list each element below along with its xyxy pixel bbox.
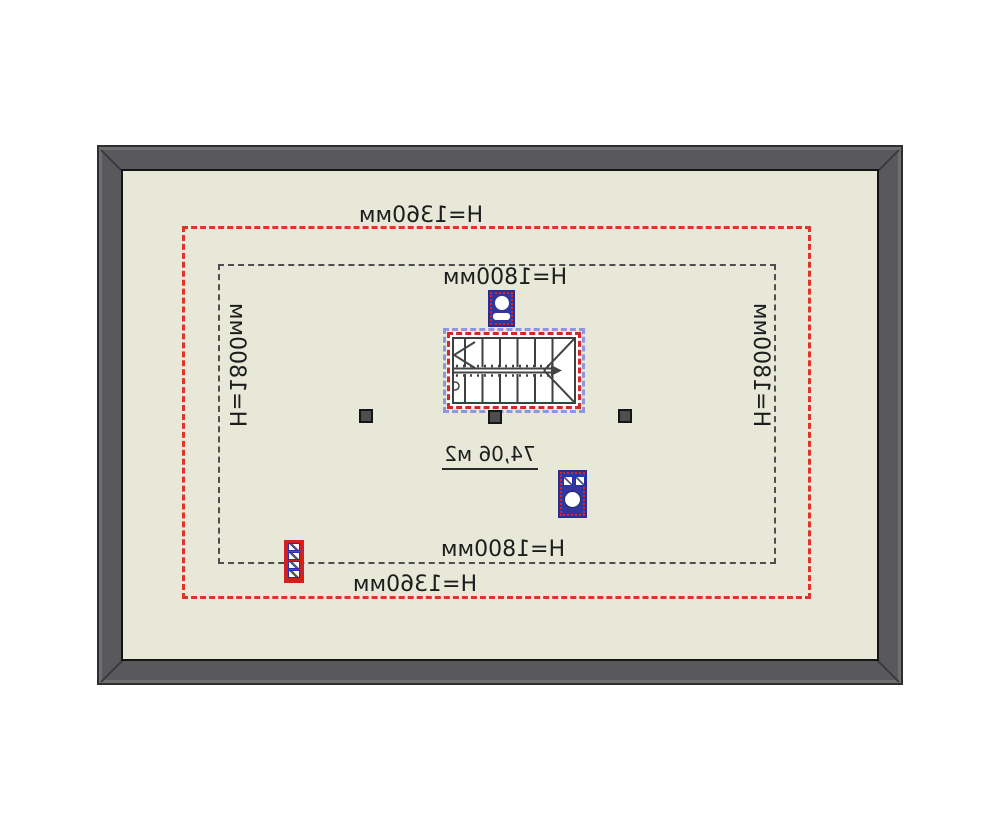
height-label-right: H=1800мм xyxy=(747,290,773,440)
chimney-symbol-bottom-left xyxy=(284,540,304,583)
height-label-left: H=1800мм xyxy=(223,290,249,440)
flue-circle-icon xyxy=(564,491,581,508)
vent-duct-icon xyxy=(288,543,300,551)
height-label-top-outer: H=1360мм xyxy=(341,203,501,229)
stair-newel-circle xyxy=(454,382,459,390)
vent-duct-icon xyxy=(575,476,585,486)
staircase-symbol xyxy=(443,328,585,413)
column-post xyxy=(618,409,632,423)
chimney-symbol-top xyxy=(488,290,515,327)
vent-duct-icon xyxy=(563,476,573,486)
vent-duct-icon xyxy=(288,561,300,569)
flue-circle-icon xyxy=(495,296,509,310)
height-label-bottom-outer: H=1360мм xyxy=(335,572,495,598)
room-area-label: 74,06 м2 xyxy=(410,442,570,470)
vent-duct-icon xyxy=(288,570,300,578)
flue-bar-icon xyxy=(493,313,510,320)
staircase-drawing xyxy=(454,339,574,402)
floor-plan-page: H=1360мм H=1800мм H=1800мм H=1800мм H=18… xyxy=(0,0,1000,822)
column-post xyxy=(359,409,373,423)
height-label-bottom-inner: H=1800мм xyxy=(423,537,583,563)
staircase-treads xyxy=(452,337,576,404)
vent-duct-icon xyxy=(288,552,300,560)
column-post xyxy=(488,410,502,424)
stair-direction-arrow xyxy=(551,365,562,376)
height-label-top-inner: H=1800мм xyxy=(425,265,585,291)
chimney-symbol-middle xyxy=(558,470,587,518)
attic-floor-plan: H=1360мм H=1800мм H=1800мм H=1800мм H=18… xyxy=(0,0,1000,822)
